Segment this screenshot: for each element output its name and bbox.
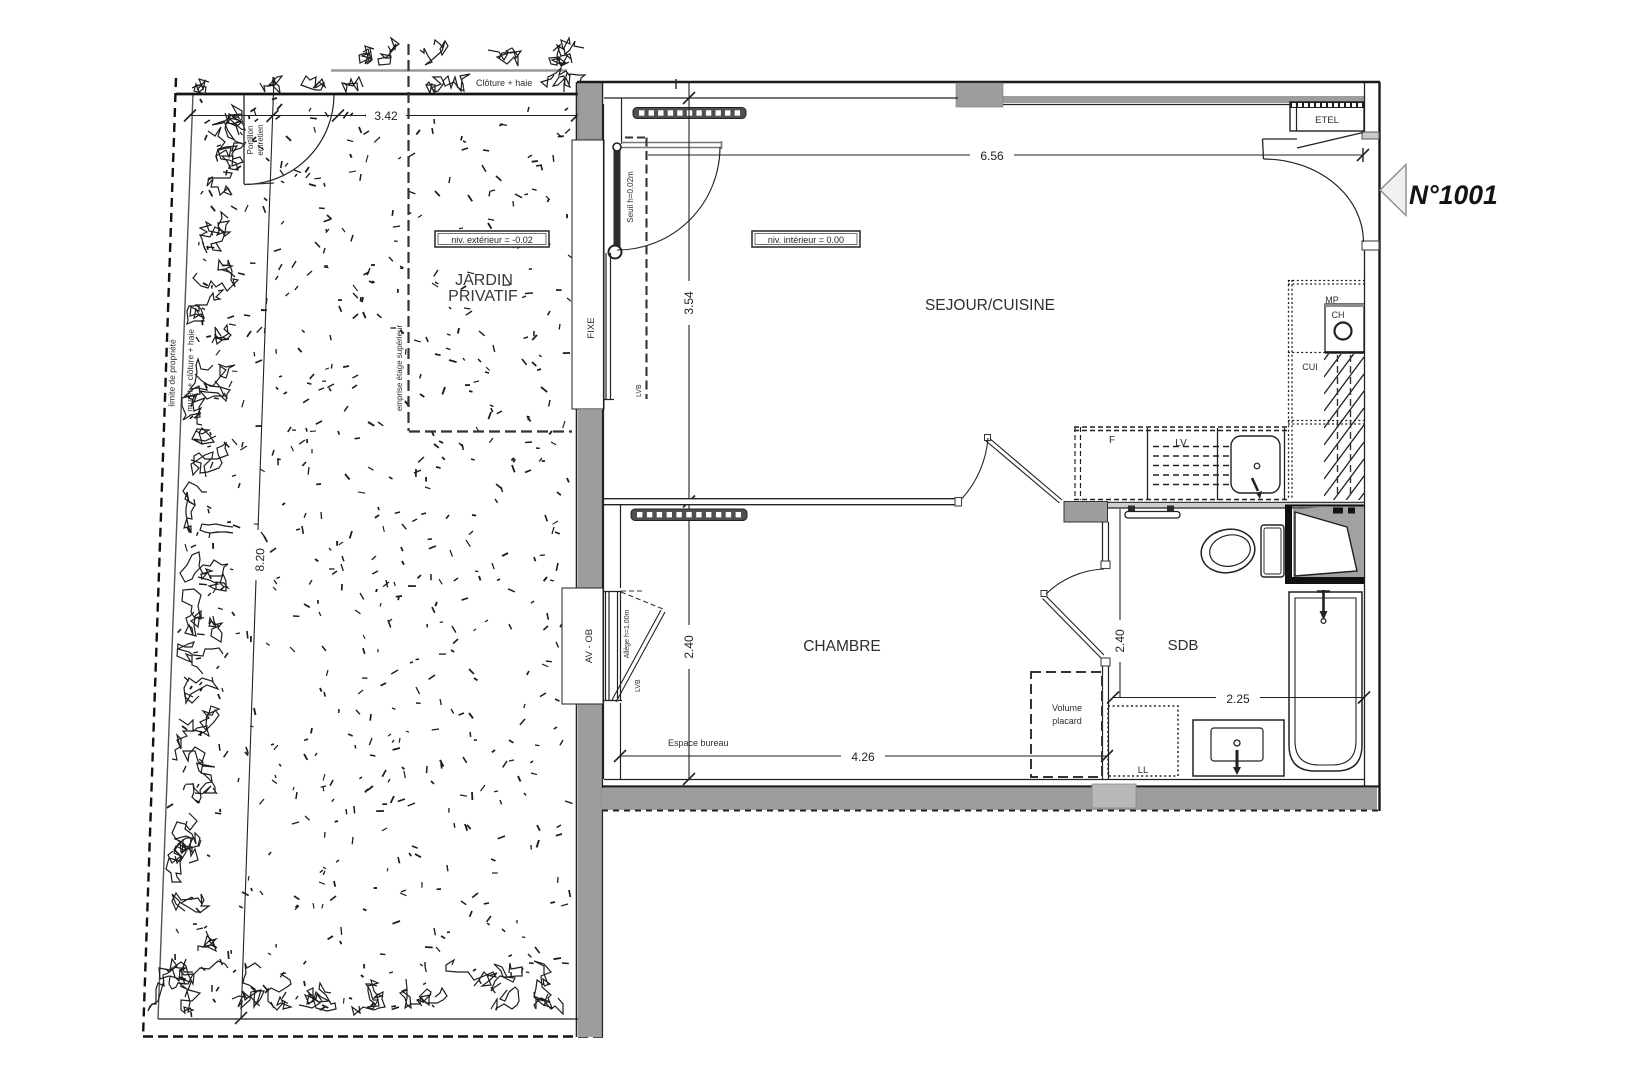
svg-text:LL: LL (1138, 765, 1149, 776)
svg-text:LVB: LVB (636, 384, 643, 397)
svg-text:emprise étage supérieur: emprise étage supérieur (395, 325, 404, 412)
svg-text:SEJOUR/CUISINE: SEJOUR/CUISINE (925, 297, 1055, 314)
svg-text:Espace bureau: Espace bureau (668, 738, 729, 748)
svg-text:PRIVATIF: PRIVATIF (448, 288, 518, 305)
svg-text:FIXE: FIXE (586, 317, 597, 338)
svg-text:CUI: CUI (1302, 362, 1318, 372)
svg-text:CH: CH (1332, 310, 1345, 320)
svg-text:limite de propriété: limite de propriété (166, 339, 177, 407)
svg-text:LV: LV (1175, 438, 1187, 449)
svg-text:ETEL: ETEL (1315, 115, 1339, 126)
svg-text:2.40: 2.40 (682, 635, 696, 659)
svg-text:niv. intérieur = 0.00: niv. intérieur = 0.00 (768, 235, 844, 245)
svg-text:4.26: 4.26 (851, 750, 875, 764)
svg-text:- muret + clôture + haie: - muret + clôture + haie (184, 329, 196, 417)
svg-text:Seuil h=0.02m: Seuil h=0.02m (626, 171, 635, 223)
svg-text:Clôture + haie: Clôture + haie (476, 78, 532, 88)
svg-text:JARDIN: JARDIN (455, 272, 513, 289)
svg-text:Allège h=1.00m: Allège h=1.00m (624, 609, 631, 658)
svg-text:niv. extérieur = -0.02: niv. extérieur = -0.02 (451, 235, 533, 245)
svg-text:LVB: LVB (635, 679, 642, 692)
svg-text:Volume: Volume (1052, 703, 1082, 713)
svg-text:6.56: 6.56 (980, 149, 1004, 163)
svg-text:3.42: 3.42 (374, 109, 398, 123)
svg-text:N°1001: N°1001 (1409, 180, 1498, 210)
svg-text:AV - OB: AV - OB (584, 629, 595, 663)
svg-text:Portillon: Portillon (246, 126, 255, 155)
svg-text:CHAMBRE: CHAMBRE (803, 638, 881, 655)
svg-text:3.54: 3.54 (682, 291, 696, 315)
svg-text:SDB: SDB (1168, 637, 1199, 654)
svg-text:placard: placard (1052, 716, 1082, 726)
svg-text:entretien: entretien (256, 124, 265, 155)
svg-text:2.25: 2.25 (1226, 692, 1250, 706)
svg-text:2.40: 2.40 (1113, 629, 1127, 653)
svg-text:8.20: 8.20 (253, 548, 268, 572)
svg-text:F: F (1109, 435, 1115, 446)
